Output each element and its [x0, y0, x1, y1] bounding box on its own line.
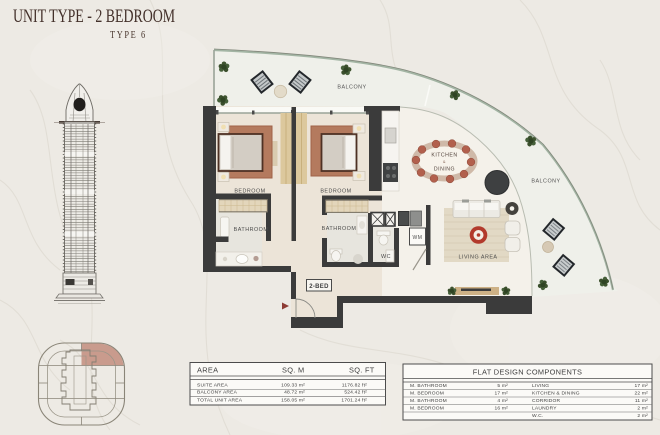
svg-text:SQ. M: SQ. M: [282, 366, 304, 375]
svg-text:AREA: AREA: [197, 366, 218, 375]
svg-text:FLAT DESIGN COMPONENTS: FLAT DESIGN COMPONENTS: [473, 368, 582, 377]
svg-text:109.33 m²: 109.33 m²: [281, 383, 305, 389]
svg-text:17 m²: 17 m²: [634, 383, 648, 389]
svg-text:2 m²: 2 m²: [637, 413, 648, 419]
svg-text:CORRIDOR: CORRIDOR: [532, 398, 560, 404]
svg-text:48.72 m²: 48.72 m²: [284, 390, 305, 396]
svg-text:M. BATHROOM: M. BATHROOM: [410, 398, 447, 404]
svg-text:16 m²: 16 m²: [494, 406, 508, 412]
svg-text:SUITE AREA: SUITE AREA: [197, 383, 228, 389]
svg-text:BALCONY AREA: BALCONY AREA: [197, 390, 238, 396]
svg-text:M. BATHROOM: M. BATHROOM: [410, 383, 447, 389]
svg-text:5 m²: 5 m²: [497, 383, 508, 389]
svg-text:17 m²: 17 m²: [494, 391, 508, 397]
svg-text:4 m²: 4 m²: [497, 398, 508, 404]
svg-text:1701.24 ft²: 1701.24 ft²: [341, 397, 367, 403]
svg-text:11 m²: 11 m²: [635, 398, 648, 404]
svg-text:158.05 m²: 158.05 m²: [281, 397, 305, 403]
svg-text:W.C.: W.C.: [532, 413, 543, 419]
svg-text:2 m²: 2 m²: [637, 406, 648, 412]
svg-text:M. BEDROOM: M. BEDROOM: [410, 406, 444, 412]
svg-text:LAUNDRY: LAUNDRY: [532, 406, 557, 412]
svg-text:TOTAL UNIT AREA: TOTAL UNIT AREA: [197, 397, 243, 403]
svg-text:524.42 ft²: 524.42 ft²: [344, 390, 367, 396]
svg-text:SQ. FT: SQ. FT: [349, 366, 375, 375]
svg-text:M. BEDROOM: M. BEDROOM: [410, 391, 444, 397]
svg-text:KITCHEN & DINING: KITCHEN & DINING: [532, 391, 580, 397]
svg-text:1176.82 ft²: 1176.82 ft²: [342, 383, 367, 389]
svg-text:LIVING: LIVING: [532, 383, 549, 389]
svg-text:22 m²: 22 m²: [634, 391, 648, 397]
